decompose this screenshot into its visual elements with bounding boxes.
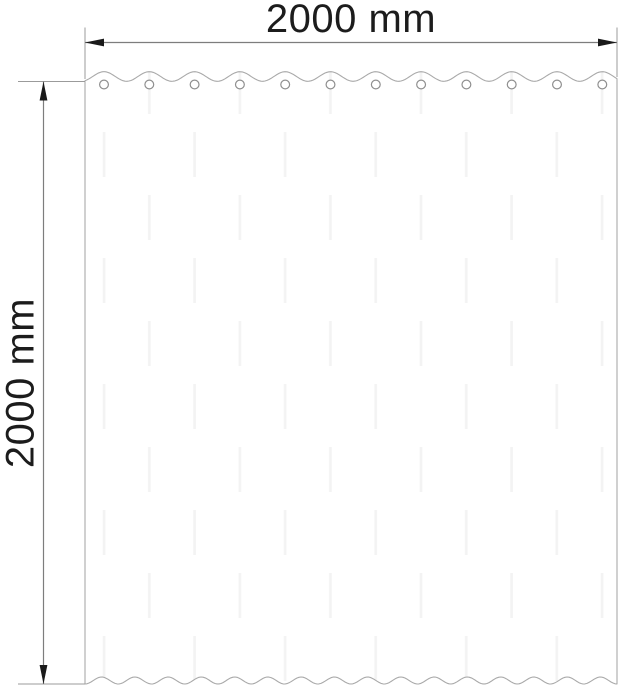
grommet-icon — [417, 80, 426, 89]
grommet-icon — [190, 80, 199, 89]
arrowhead-down-icon — [40, 665, 48, 684]
height-dimension: 2000 mm — [0, 82, 85, 685]
grommet-icon — [145, 80, 154, 89]
diagram-canvas: 2000 mm 2000 mm — [0, 0, 629, 690]
arrowhead-right-icon — [598, 39, 617, 47]
grommet-icon — [507, 80, 516, 89]
grommet-icon — [326, 80, 335, 89]
width-dimension: 2000 mm — [85, 0, 617, 79]
curtain-dimension-diagram: 2000 mm 2000 mm — [0, 0, 629, 690]
grommet-icon — [281, 80, 290, 89]
arrowhead-up-icon — [40, 82, 48, 101]
grommet-icon — [371, 80, 380, 89]
grommet-icon — [553, 80, 562, 89]
curtain-fabric-body — [85, 72, 617, 684]
height-dimension-label: 2000 mm — [0, 298, 43, 468]
arrowhead-left-icon — [85, 39, 104, 47]
width-dimension-label: 2000 mm — [266, 0, 436, 41]
grommet-icon — [598, 80, 607, 89]
grommet-icon — [236, 80, 245, 89]
grommet-icon — [462, 80, 471, 89]
grommet-icon — [100, 80, 109, 89]
